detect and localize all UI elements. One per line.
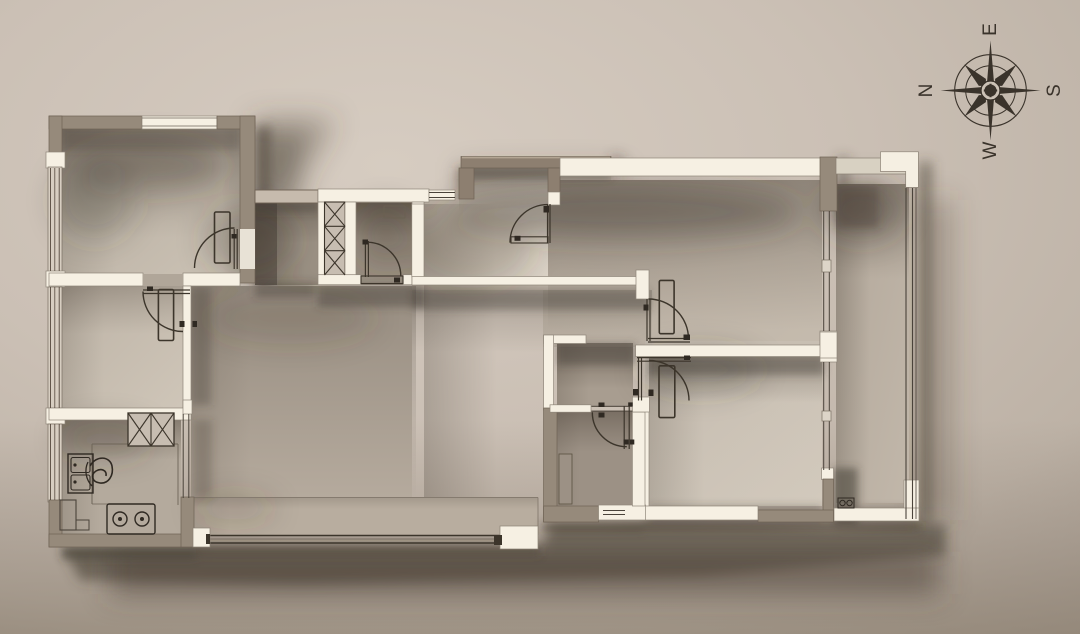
- svg-text:N: N: [916, 84, 937, 98]
- svg-text:S: S: [1044, 84, 1065, 97]
- svg-text:E: E: [980, 23, 1001, 36]
- svg-text:W: W: [980, 141, 1001, 159]
